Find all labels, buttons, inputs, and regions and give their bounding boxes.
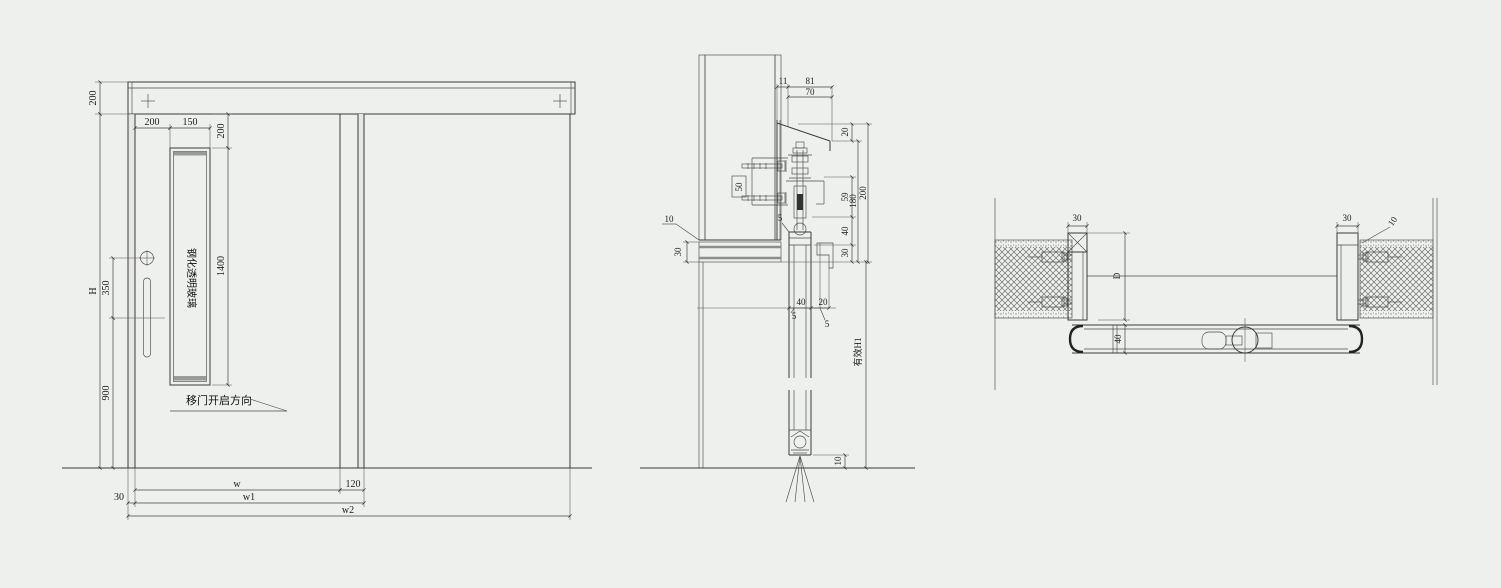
dim-20-top: 20 bbox=[840, 127, 850, 137]
wall-bolt bbox=[742, 160, 786, 172]
dim-opening-depth: D bbox=[1112, 272, 1122, 279]
cad-drawing: 钢化透明玻璃 移门开启方向 200 H 350 bbox=[0, 0, 1501, 588]
dim-180: 180 bbox=[848, 194, 858, 208]
dim-50-box: 50 bbox=[734, 182, 744, 192]
handle-plan bbox=[1202, 332, 1226, 349]
dim-overlap: 120 bbox=[346, 479, 361, 490]
opening-direction-arrow: 移门开启方向 bbox=[170, 393, 287, 411]
floor-guide-wheel bbox=[794, 436, 806, 448]
glass-label: 钢化透明玻璃 bbox=[185, 248, 198, 308]
jamb-post-right bbox=[1337, 233, 1358, 320]
dim-vision-left: 200 bbox=[145, 117, 160, 128]
dim-effective-height: 有效H1 bbox=[852, 338, 863, 367]
dim-5-top: 5 bbox=[778, 213, 783, 223]
recessed-handle bbox=[144, 278, 151, 357]
dim-panel-thickness: 40 bbox=[1113, 334, 1123, 344]
plan-dimensions: 30 30 10 D 40 bbox=[1068, 213, 1400, 353]
cad-canvas: 钢化透明玻璃 移门开启方向 200 H 350 bbox=[0, 0, 1501, 588]
dim-30-sill: 30 bbox=[673, 247, 683, 257]
dim-post-right: 30 bbox=[1343, 213, 1353, 223]
wall-bolt bbox=[742, 192, 786, 204]
dim-5-a: 5 bbox=[792, 311, 797, 321]
direction-label: 移门开启方向 bbox=[186, 393, 252, 407]
door-panel-section bbox=[789, 232, 811, 455]
dim-200: 200 bbox=[858, 186, 868, 200]
door-handle-set bbox=[139, 250, 155, 357]
dim-40-right: 40 bbox=[840, 226, 850, 236]
dim-5-b: 5 bbox=[825, 319, 830, 329]
wall-section: 50 bbox=[699, 55, 781, 240]
section-dimensions: 11 81 70 20 59 40 30 180 200 10 bbox=[662, 76, 872, 468]
cross-mark-icon bbox=[141, 94, 155, 108]
sill-soffit bbox=[699, 242, 833, 468]
elevation-dimensions: 200 H 350 900 200 150 200 1400 bbox=[88, 82, 570, 520]
vertical-section-view: 50 bbox=[640, 55, 915, 502]
cross-mark-icon bbox=[553, 94, 567, 108]
dim-clear-width: w bbox=[233, 479, 241, 490]
dim-81: 81 bbox=[806, 76, 815, 86]
dim-11: 11 bbox=[779, 76, 788, 86]
dim-30-right: 30 bbox=[840, 248, 850, 258]
floor-and-anchor bbox=[640, 456, 915, 502]
dim-overall-width: w2 bbox=[342, 505, 354, 516]
wall-plan-left bbox=[995, 198, 1072, 390]
dim-post-left: 30 bbox=[1073, 213, 1083, 223]
wall-anchor-bolts bbox=[1028, 252, 1402, 307]
dim-10-wall: 10 bbox=[665, 214, 675, 224]
header-track-box bbox=[128, 82, 575, 114]
wall-plan-right bbox=[1360, 198, 1437, 385]
panel-end-cap bbox=[1070, 326, 1083, 352]
dim-leaf-width: w1 bbox=[243, 492, 255, 503]
panel-end-cap bbox=[1349, 326, 1362, 352]
dim-gap-right: 10 bbox=[1386, 214, 1400, 228]
dim-total-height: H bbox=[88, 287, 99, 294]
dim-20-gap: 20 bbox=[819, 297, 829, 307]
hanger-mechanism bbox=[742, 142, 824, 235]
dim-vision-height: 1400 bbox=[216, 256, 227, 276]
vision-glass-panel: 钢化透明玻璃 bbox=[170, 148, 210, 385]
plan-section-view: 30 30 10 D 40 bbox=[995, 198, 1437, 390]
track-hood bbox=[777, 120, 830, 240]
elevation-view: 钢化透明玻璃 移门开启方向 200 H 350 bbox=[62, 82, 592, 520]
dim-frame-offset: 30 bbox=[114, 492, 124, 503]
dim-40-panel: 40 bbox=[797, 297, 807, 307]
dim-70: 70 bbox=[806, 87, 816, 97]
dim-vision-width: 150 bbox=[183, 117, 198, 128]
dim-handle-height: 900 bbox=[101, 386, 112, 401]
dim-handle-offset: 350 bbox=[101, 281, 112, 296]
dim-vision-top: 200 bbox=[216, 124, 227, 139]
dim-header-height: 200 bbox=[88, 91, 99, 106]
dim-10-floor: 10 bbox=[833, 456, 843, 466]
door-frame-and-panels bbox=[62, 114, 592, 468]
